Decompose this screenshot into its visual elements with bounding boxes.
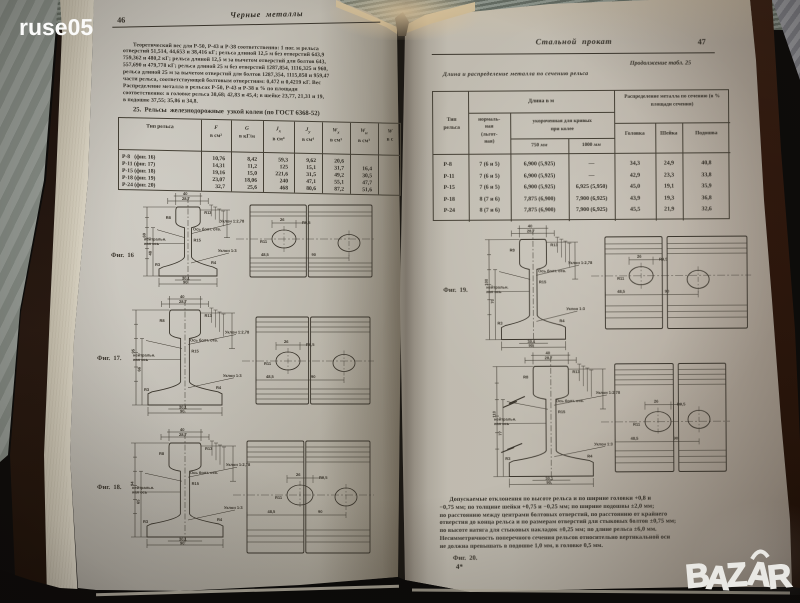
svg-text:90: 90 bbox=[665, 289, 670, 294]
svg-text:Уклон 1:2,78: Уклон 1:2,78 bbox=[568, 260, 593, 265]
svg-text:R9,5: R9,5 bbox=[659, 257, 668, 262]
svg-text:Z: Z bbox=[725, 555, 748, 593]
svg-text:R3: R3 bbox=[505, 456, 511, 461]
svg-text:30,1: 30,1 bbox=[528, 339, 537, 344]
svg-text:48,5: 48,5 bbox=[631, 436, 640, 441]
svg-text:R13: R13 bbox=[572, 369, 580, 374]
svg-text:90: 90 bbox=[674, 435, 679, 440]
svg-text:R15: R15 bbox=[539, 279, 547, 284]
svg-text:R11: R11 bbox=[633, 422, 641, 427]
svg-text:48,5: 48,5 bbox=[617, 289, 626, 294]
svg-text:Уклон 1:2,78: Уклон 1:2,78 bbox=[596, 390, 621, 395]
svg-text:R13: R13 bbox=[550, 242, 558, 247]
svg-text:70: 70 bbox=[490, 298, 495, 303]
svg-text:R8: R8 bbox=[510, 247, 516, 252]
svg-text:ная ось: ная ось bbox=[494, 421, 510, 426]
svg-text:Уклон 1:3: Уклон 1:3 bbox=[594, 441, 613, 446]
svg-text:R8: R8 bbox=[523, 374, 529, 379]
svg-text:Фиг. 20.: Фиг. 20. bbox=[453, 555, 478, 562]
svg-text:Уклон 1:3: Уклон 1:3 bbox=[566, 306, 585, 311]
svg-text:R3: R3 bbox=[497, 321, 503, 326]
svg-text:R4: R4 bbox=[559, 318, 565, 323]
svg-text:28,7: 28,7 bbox=[527, 228, 536, 233]
svg-text:R4: R4 bbox=[587, 453, 593, 458]
svg-text:Ось болт. отв.: Ось болт. отв. bbox=[556, 398, 584, 403]
svg-text:R9,5: R9,5 bbox=[677, 401, 686, 406]
svg-text:Фиг. 19.: Фиг. 19. bbox=[443, 287, 468, 294]
svg-text:R11: R11 bbox=[617, 276, 625, 281]
svg-text:28,7: 28,7 bbox=[545, 355, 554, 360]
svg-text:R15: R15 bbox=[558, 409, 566, 414]
svg-text:77: 77 bbox=[498, 430, 503, 435]
svg-text:26: 26 bbox=[654, 399, 659, 404]
svg-text:26: 26 bbox=[637, 254, 642, 259]
svg-text:ная ось: ная ось bbox=[486, 289, 502, 294]
svg-text:30,1: 30,1 bbox=[545, 476, 554, 481]
svg-text:Ось болт. отв.: Ось болт. отв. bbox=[538, 268, 566, 273]
svg-text:R: R bbox=[766, 556, 794, 595]
